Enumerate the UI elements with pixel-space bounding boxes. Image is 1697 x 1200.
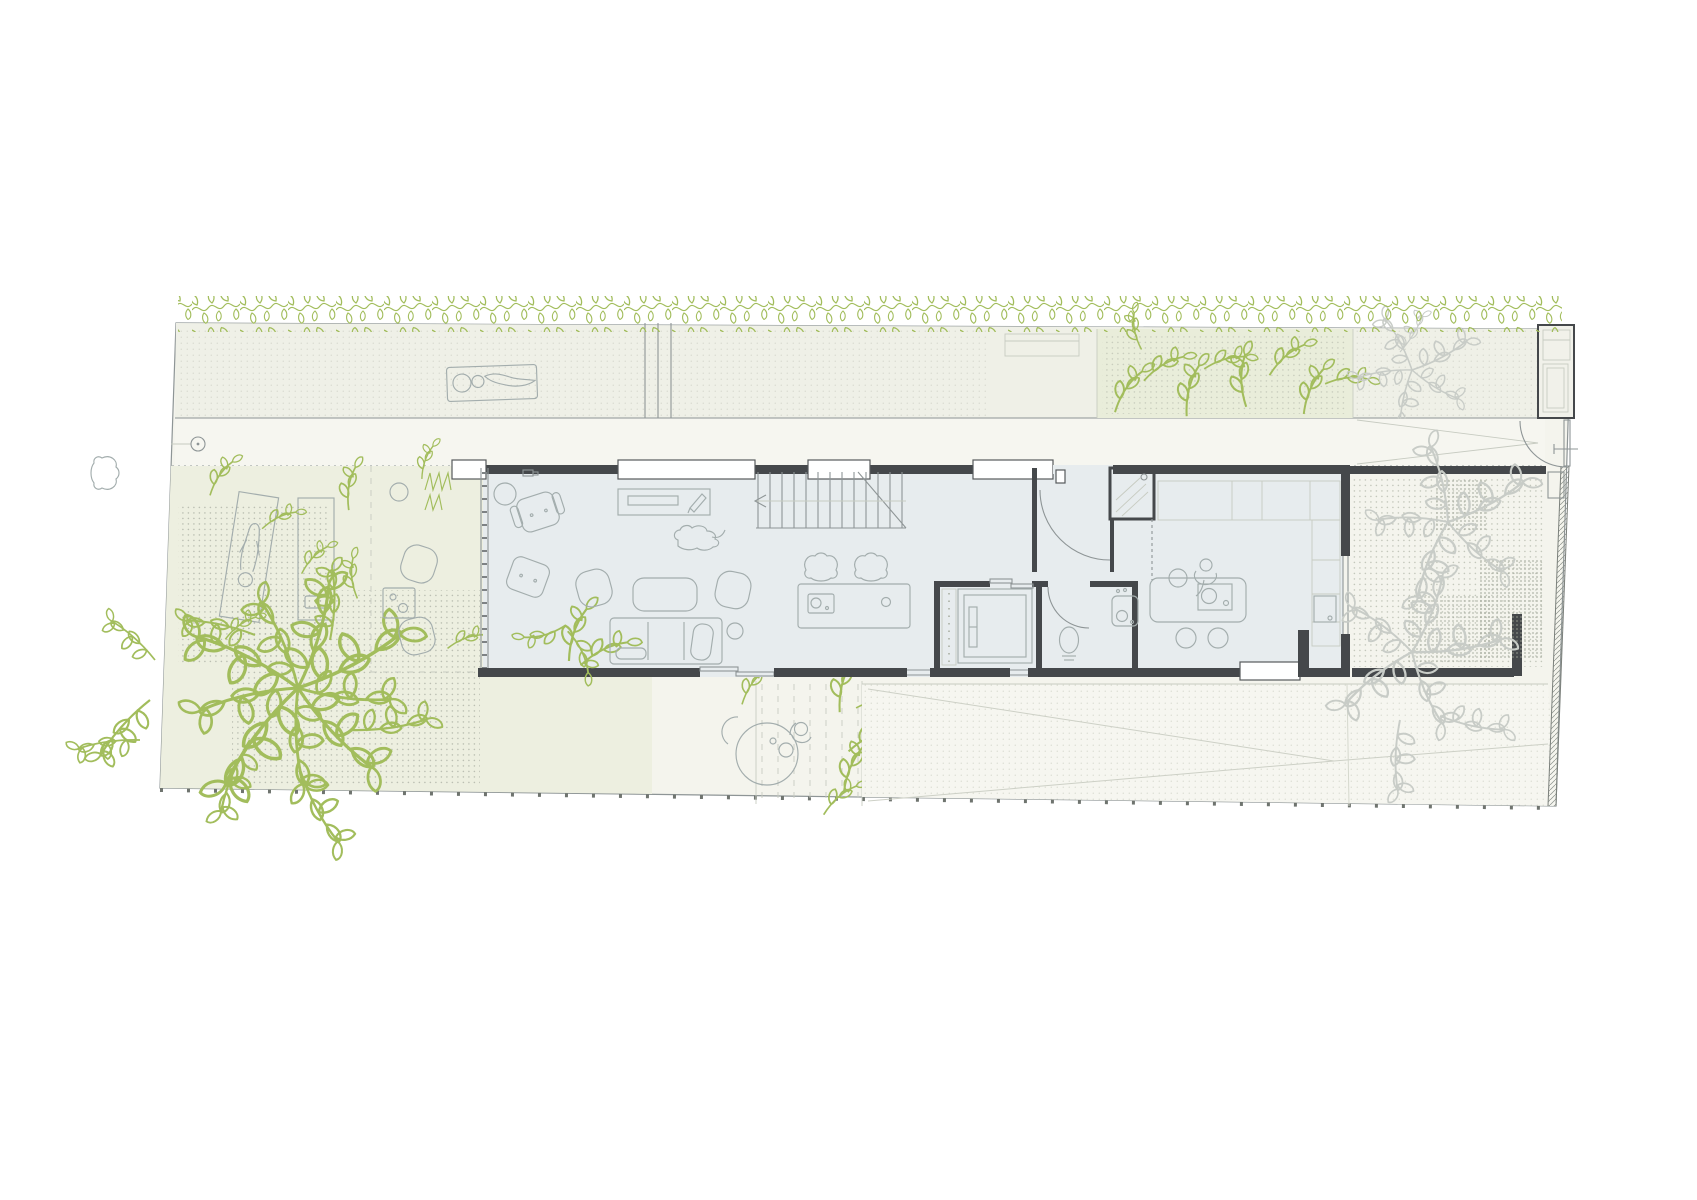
window [808, 460, 870, 479]
green-hedge [178, 296, 1562, 332]
dining-chair [91, 457, 119, 490]
entry-gate [1538, 325, 1574, 418]
driveway [862, 684, 1556, 806]
entry-walkway [171, 419, 1545, 466]
courtyard-north-wall [1350, 466, 1546, 474]
floor-plan-canvas [0, 0, 1697, 1200]
window [618, 460, 755, 479]
window [973, 460, 1053, 479]
hall-wall [1032, 468, 1037, 572]
floor-plan-svg [0, 0, 1697, 1200]
window [1240, 662, 1300, 680]
